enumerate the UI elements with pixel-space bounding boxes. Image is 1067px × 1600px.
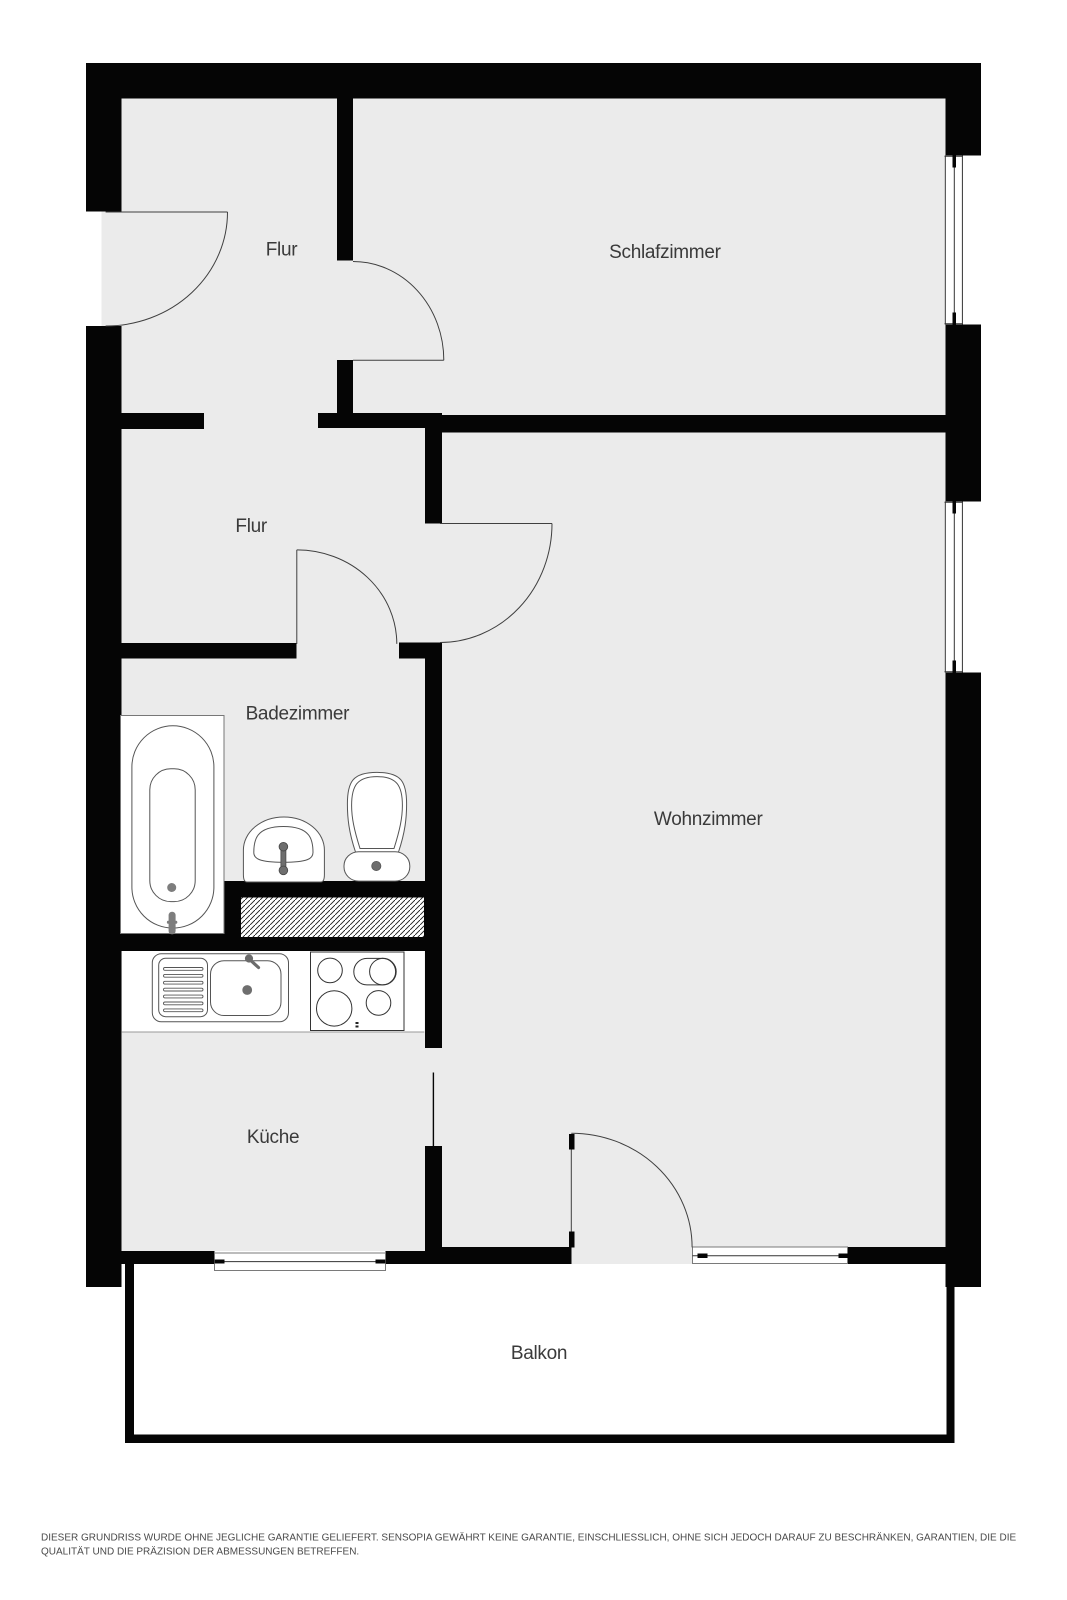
svg-text:Wohnzimmer: Wohnzimmer bbox=[654, 809, 764, 830]
svg-text:Küche: Küche bbox=[247, 1127, 299, 1148]
svg-text:DIESER GRUNDRISS WURDE OHNE JE: DIESER GRUNDRISS WURDE OHNE JEGLICHE GAR… bbox=[41, 1531, 1017, 1543]
svg-text:QUALITÄT UND DIE PRÄZISION DER: QUALITÄT UND DIE PRÄZISION DER ABMESSUNG… bbox=[41, 1546, 359, 1558]
svg-text:Badezimmer: Badezimmer bbox=[246, 704, 351, 725]
svg-text:Flur: Flur bbox=[266, 239, 298, 260]
svg-text:Flur: Flur bbox=[235, 516, 267, 537]
svg-text:Schlafzimmer: Schlafzimmer bbox=[609, 242, 721, 263]
svg-text:Balkon: Balkon bbox=[511, 1343, 567, 1364]
